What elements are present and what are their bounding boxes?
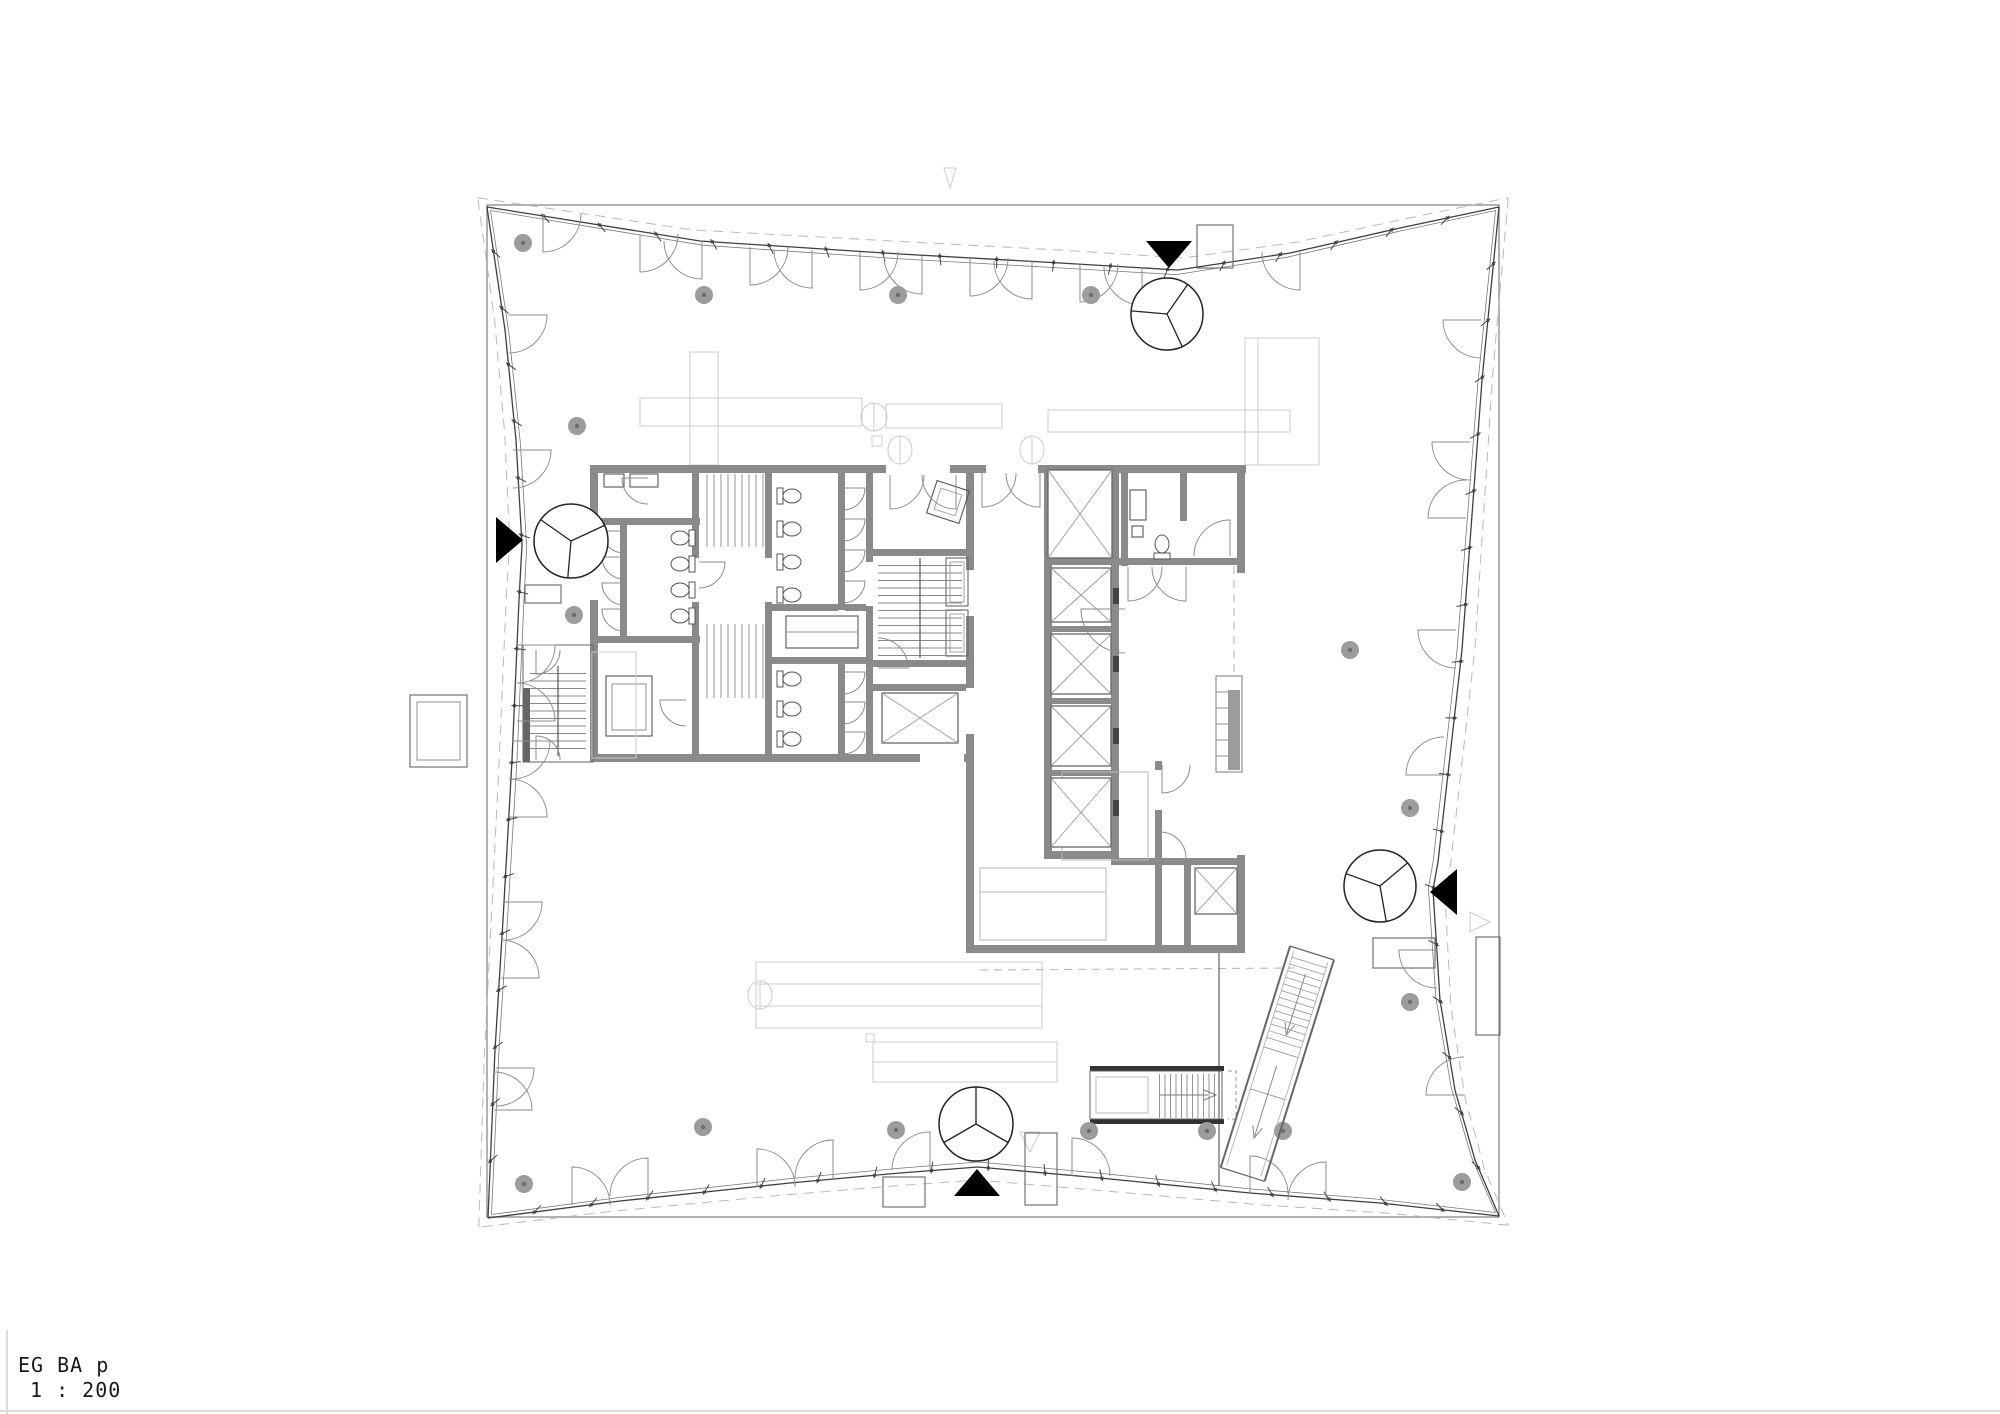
door-swing xyxy=(994,261,1032,299)
facade-mullion-node xyxy=(500,306,503,309)
column-center-dot xyxy=(896,293,900,297)
facade-mullion-node xyxy=(1222,262,1225,265)
faint-double-door xyxy=(861,403,887,431)
west-skylight-outer xyxy=(410,695,467,767)
elevator-shaft xyxy=(1051,634,1111,694)
toilet-bowl xyxy=(671,609,689,623)
wall-segment xyxy=(872,684,967,691)
column xyxy=(514,234,532,252)
facade-mullion-node xyxy=(1044,1172,1047,1175)
facade-mullion-node xyxy=(513,704,516,707)
column xyxy=(695,286,713,304)
toilet xyxy=(777,731,801,747)
faint-direction-triangle xyxy=(1470,912,1490,932)
column xyxy=(568,417,586,435)
toilet-tank xyxy=(777,554,783,570)
facade-mullion-node xyxy=(590,1203,593,1206)
facade-mullion-node xyxy=(507,818,510,821)
facade-mullion-node xyxy=(1214,1188,1217,1191)
facade-mullion-node xyxy=(1472,489,1475,492)
escalator-break-line xyxy=(1264,1047,1298,1058)
column xyxy=(1401,799,1419,817)
door-swing xyxy=(750,247,788,285)
entrance-arrow-triangle xyxy=(1146,241,1192,268)
toilet xyxy=(777,488,801,504)
facade-mullion-node xyxy=(504,875,507,878)
drawing-sheet: EG BA p 1 : 200 xyxy=(0,0,2000,1414)
wall-segment xyxy=(838,664,845,762)
title-block: EG BA p 1 : 200 xyxy=(18,1353,121,1402)
faint-post xyxy=(872,436,882,446)
facade-outer-line xyxy=(487,207,522,1218)
facade-mullion-node xyxy=(1384,1202,1387,1205)
elevator-shaft xyxy=(1051,706,1111,766)
facade-mullion-node xyxy=(598,223,601,226)
sheet-edge-lines xyxy=(0,1330,2000,1414)
column-center-dot xyxy=(521,241,525,245)
facade-mullion-node xyxy=(489,1160,492,1163)
door-swing xyxy=(504,902,542,940)
facade-mullion-node xyxy=(1486,319,1489,322)
toilet xyxy=(777,521,801,537)
door-swing xyxy=(1399,950,1437,988)
door-swing xyxy=(1250,1156,1288,1194)
wall-segment xyxy=(966,761,974,953)
wall-segment xyxy=(772,657,873,664)
toilet-tank xyxy=(777,731,783,747)
wall-segment xyxy=(872,660,967,667)
wall-segment xyxy=(1111,858,1245,865)
column-center-dot xyxy=(575,424,579,428)
facade-mullion-node xyxy=(1440,830,1443,833)
east-facade-box xyxy=(1476,937,1500,1035)
elevator-shaft xyxy=(1048,470,1112,558)
wall-segment xyxy=(590,636,700,643)
faint-counter xyxy=(756,962,1042,1028)
column-center-dot xyxy=(1408,806,1412,810)
facade-mullion-node xyxy=(494,1046,497,1049)
slab-edge-dashed xyxy=(478,198,1508,258)
column xyxy=(1198,1122,1216,1140)
wall-opening xyxy=(986,465,1038,473)
facade-mullion-node xyxy=(873,1174,876,1177)
column-center-dot xyxy=(1087,1129,1091,1133)
toilet-bowl xyxy=(783,588,801,602)
wall-opening xyxy=(886,465,950,473)
escalator-end xyxy=(1290,946,1334,960)
facade-mullion-node xyxy=(938,255,941,258)
door-swing xyxy=(1426,1057,1464,1095)
column-center-dot xyxy=(702,293,706,297)
facade-mullion-node xyxy=(1439,1000,1442,1003)
column-center-dot xyxy=(1348,648,1352,652)
entrance-arrow-triangle xyxy=(496,517,523,563)
faint-zone xyxy=(1245,338,1319,465)
toilet xyxy=(777,554,801,570)
escalator-end xyxy=(1221,1168,1265,1182)
facade-mullion-node xyxy=(654,232,657,235)
facade-mullion-node xyxy=(1390,228,1393,231)
facade-mullion-node xyxy=(507,363,510,366)
toilet-bowl xyxy=(783,702,801,716)
stair xyxy=(1160,1074,1215,1118)
door-swing xyxy=(509,315,547,353)
column xyxy=(1082,286,1100,304)
toilet-bowl xyxy=(671,557,689,571)
escalator xyxy=(1221,946,1334,1181)
facade-mullion-node xyxy=(881,251,884,254)
column-center-dot xyxy=(1460,1180,1464,1184)
facade-outer-line xyxy=(1433,207,1499,1216)
facade-mullion-node xyxy=(1446,773,1449,776)
toilet xyxy=(777,671,801,687)
wall-segment xyxy=(590,518,700,525)
facade-mullion-node xyxy=(1446,216,1449,219)
wall-opening xyxy=(765,558,772,602)
interior-dashed-line xyxy=(980,968,1295,970)
toilet-tank xyxy=(777,701,783,717)
column xyxy=(565,606,583,624)
door-swing xyxy=(501,940,539,978)
facade-mullion-node xyxy=(1441,1208,1444,1211)
facade-mullion-node xyxy=(768,244,771,247)
lobby-stair-edge xyxy=(1090,1066,1224,1071)
facade-mullion-node xyxy=(518,590,521,593)
entrance-west xyxy=(496,504,608,578)
facade-mullion-node xyxy=(1453,716,1456,719)
faint-duct-strip xyxy=(690,352,718,465)
wall-opening xyxy=(920,754,964,762)
elevator-door-tick xyxy=(1113,588,1119,604)
facade-mullion-node xyxy=(1334,241,1337,244)
faint-counter xyxy=(640,398,862,426)
south-entrance-box xyxy=(883,1177,925,1207)
facade-inner-line xyxy=(491,211,1496,275)
toilet-tank xyxy=(689,530,695,546)
column-center-dot xyxy=(522,1182,526,1186)
elevator-door-tick xyxy=(1113,800,1119,816)
faint-double-door xyxy=(748,981,772,1009)
column-center-dot xyxy=(894,1128,898,1132)
faint-counter xyxy=(1048,410,1290,432)
toilet xyxy=(671,556,695,572)
wall-segment xyxy=(1121,465,1128,566)
west-entrance-box xyxy=(525,585,561,603)
door-swing xyxy=(1418,630,1456,668)
escalator-band xyxy=(1221,946,1334,1181)
facade-mullion-node xyxy=(1476,433,1479,436)
toilet-tank xyxy=(777,587,783,603)
toilet-bowl xyxy=(783,732,801,746)
toilet xyxy=(671,530,695,546)
lobby-counter-top xyxy=(1228,690,1240,770)
toilet-tank xyxy=(777,521,783,537)
toilet-bowl xyxy=(671,583,689,597)
entrance-east xyxy=(1344,850,1457,922)
column-center-dot xyxy=(1408,1000,1412,1004)
toilet-tank xyxy=(689,582,695,598)
door-swing xyxy=(640,234,678,272)
wall-segment xyxy=(1051,626,1112,632)
facade-mullion-node xyxy=(816,1179,819,1182)
faint-double-door xyxy=(888,436,912,464)
facade-mullion-node xyxy=(646,1197,649,1200)
facade-mullion-node xyxy=(1109,264,1112,267)
door-swing xyxy=(1428,480,1466,518)
wall-segment xyxy=(838,472,845,612)
elevator-shaft xyxy=(1195,868,1237,914)
facade-mullion-node xyxy=(760,1185,763,1188)
wall-opening xyxy=(866,562,873,606)
toilet-bowl xyxy=(783,489,801,503)
wall-segment xyxy=(866,465,873,762)
column xyxy=(515,1175,533,1193)
column xyxy=(1401,993,1419,1011)
entrance-south xyxy=(939,1087,1013,1196)
drawing-scale: 1 : 200 xyxy=(30,1378,121,1402)
toilet-tank xyxy=(689,608,695,624)
column xyxy=(887,1121,905,1139)
wall-opening xyxy=(966,570,974,616)
door-swing xyxy=(795,1140,833,1178)
facade-mullion-node xyxy=(825,248,828,251)
wall-segment xyxy=(872,549,967,556)
toilet-tank xyxy=(777,671,783,687)
entrance-north xyxy=(1131,241,1203,350)
stair xyxy=(530,666,586,756)
door-swing xyxy=(1443,320,1481,358)
toilet xyxy=(1154,535,1170,559)
column xyxy=(1080,1122,1098,1140)
facade-mullion-node xyxy=(515,647,518,650)
door-swing xyxy=(610,1158,648,1196)
column xyxy=(1341,641,1359,659)
lobby-stair-landing xyxy=(1096,1077,1148,1113)
toilet xyxy=(777,587,801,603)
facade-mullion-node xyxy=(1492,262,1495,265)
facade-mullion-node xyxy=(711,240,714,243)
facade-side-north xyxy=(478,198,1508,278)
facade-outer-line xyxy=(487,207,1499,270)
facade-mullion-node xyxy=(1459,660,1462,663)
door-swing xyxy=(774,250,812,288)
facade-mullion-node xyxy=(517,476,520,479)
facade-mullion-node xyxy=(1448,1056,1451,1059)
toilet-bowl xyxy=(783,555,801,569)
facade-mullion-node xyxy=(501,932,504,935)
toilet-tank xyxy=(1154,553,1170,559)
wall-segment xyxy=(1111,558,1245,565)
facade-mullion-node xyxy=(491,1103,494,1106)
north-entrance-box xyxy=(1197,225,1233,268)
facade-mullion-node xyxy=(1157,1182,1160,1185)
door-swing xyxy=(664,241,702,279)
facade-mullion-node xyxy=(1279,253,1282,256)
toilet xyxy=(671,582,695,598)
column xyxy=(889,286,907,304)
elevator-shaft xyxy=(1051,778,1111,847)
facade-mullion-node xyxy=(1166,268,1169,271)
facade-mullion-node xyxy=(497,989,500,992)
facade-mullion-node xyxy=(1481,376,1484,379)
toilet-bowl xyxy=(783,672,801,686)
elevator-shaft xyxy=(882,693,958,743)
drawing-title: EG BA p xyxy=(18,1353,109,1377)
west-stair-wall xyxy=(523,688,530,762)
column-center-dot xyxy=(572,613,576,617)
facade-inner-line xyxy=(492,1162,1496,1215)
facade-side-east xyxy=(1425,198,1508,1225)
column-center-dot xyxy=(1205,1129,1209,1133)
facade-mullion-node xyxy=(1464,603,1467,606)
wall-segment xyxy=(1237,465,1245,573)
wall-opening xyxy=(966,688,974,734)
door-swing xyxy=(536,650,560,674)
faint-direction-triangle xyxy=(944,168,956,188)
column xyxy=(1453,1173,1471,1191)
wall-segment xyxy=(1051,770,1112,776)
slab-edge-dashed xyxy=(479,1180,1508,1227)
wall-segment xyxy=(765,465,772,762)
wall-segment xyxy=(772,604,873,611)
facade-mullion-node xyxy=(1327,1198,1330,1201)
column-center-dot xyxy=(701,1125,705,1129)
floor-plan-canvas: EG BA p 1 : 200 xyxy=(0,0,2000,1414)
faint-double-door xyxy=(1020,436,1044,464)
faint-post xyxy=(866,1034,874,1042)
wall-segment xyxy=(590,754,974,762)
wall-segment xyxy=(966,945,1245,953)
toilet-tank xyxy=(689,556,695,572)
toilet-tank xyxy=(777,488,783,504)
wall-segment xyxy=(1237,855,1245,953)
faint-direction-triangle xyxy=(1020,1132,1040,1152)
door-swing xyxy=(536,736,560,760)
faint-counter xyxy=(886,404,1002,428)
west-skylight-inner xyxy=(417,702,460,760)
wall-segment xyxy=(1184,858,1191,953)
toilet-bowl xyxy=(783,522,801,536)
column-center-dot xyxy=(1089,293,1093,297)
facade-mullion-node xyxy=(995,258,998,261)
elevator-door-tick xyxy=(1113,728,1119,744)
column xyxy=(694,1118,712,1136)
facade-mullion-node xyxy=(492,250,495,253)
facade-mullion-node xyxy=(1100,1177,1103,1180)
facade-mullion-node xyxy=(520,533,523,536)
door-swing xyxy=(1432,442,1470,480)
escalator-arrow-shaft xyxy=(1255,1066,1277,1137)
wall-segment xyxy=(620,518,627,643)
wall-segment xyxy=(1044,851,1119,859)
door-swing xyxy=(1262,252,1300,290)
door-swing xyxy=(1072,1138,1110,1176)
wall-opening xyxy=(1155,770,1162,810)
elevator-door-tick xyxy=(1113,656,1119,672)
east-room xyxy=(1373,938,1435,968)
wall-segment xyxy=(1180,465,1187,521)
facade-mullion-node xyxy=(1271,1193,1274,1196)
stair-dashed-bracket xyxy=(1228,1071,1236,1119)
toilet-bowl xyxy=(1155,535,1169,553)
facade-mullion-node xyxy=(1477,1166,1480,1169)
toilet xyxy=(671,608,695,624)
toilet-bowl xyxy=(671,531,689,545)
facade-mullion-node xyxy=(1052,261,1055,264)
wall-segment xyxy=(1044,558,1119,565)
toilet xyxy=(777,701,801,717)
wall-segment xyxy=(1051,698,1112,704)
facade-mullion-node xyxy=(510,761,513,764)
facade-mullion-node xyxy=(533,1210,536,1213)
facade-mullion-node xyxy=(1468,546,1471,549)
door-swing xyxy=(1406,737,1444,775)
facade-mullion-node xyxy=(513,420,516,423)
facade-inner-line xyxy=(1428,211,1495,1213)
facade-mullion-node xyxy=(1460,1112,1463,1115)
facade-mullion-node xyxy=(987,1166,990,1169)
facade-mullion-node xyxy=(703,1191,706,1194)
door-swing xyxy=(496,1068,534,1106)
entrance-arrow-triangle xyxy=(954,1169,1000,1196)
